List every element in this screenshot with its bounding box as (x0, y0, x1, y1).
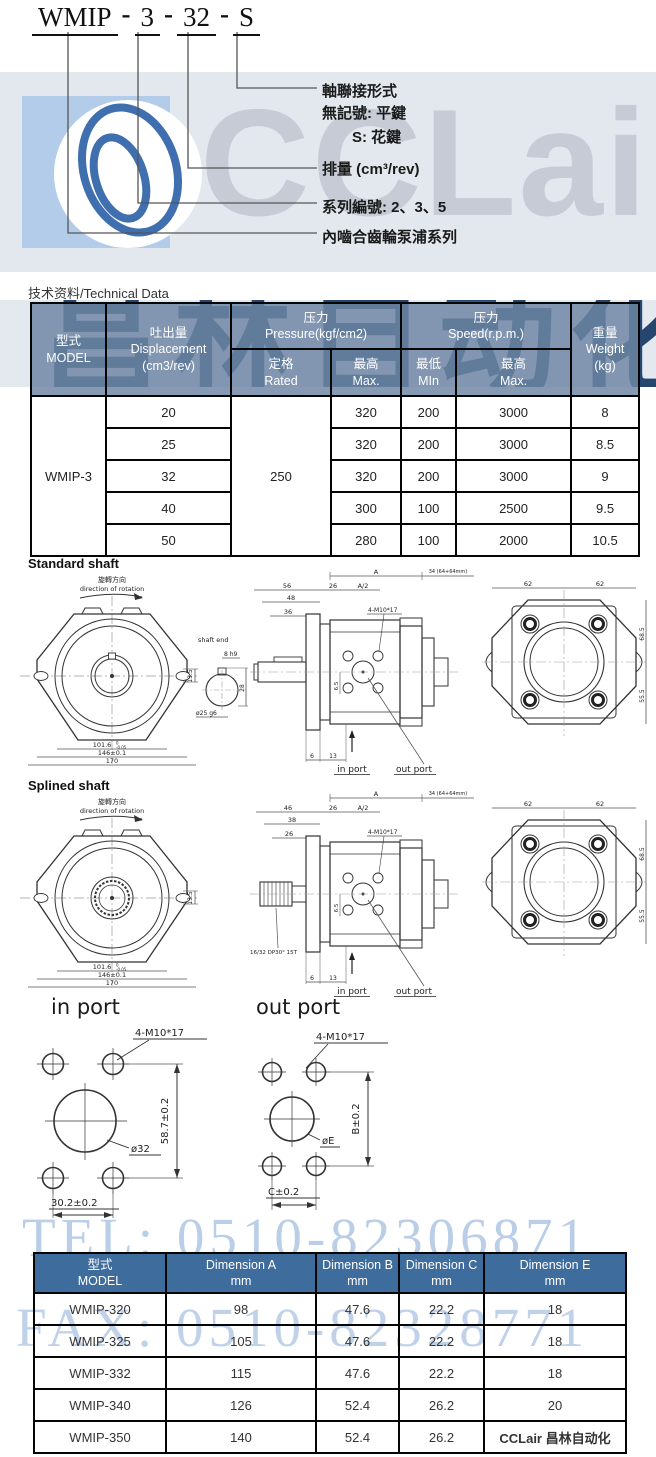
shaft-end-label: shaft end (198, 636, 229, 644)
th-min-en: MIn (402, 373, 455, 389)
th-model-zh: 型式 (32, 333, 105, 349)
cell-dim-b: 47.6 (316, 1325, 399, 1357)
spline-spec-label: 16/32 DP30° 15T (250, 950, 298, 956)
th-dim-e-unit: mm (485, 1273, 625, 1289)
dim-6-5-label: 6.5 (334, 903, 340, 912)
cell-dim-c: 26.2 (399, 1389, 484, 1421)
cell-smin: 200 (401, 396, 456, 428)
dim-row: WMIP-325 105 47.6 22.2 18 (34, 1325, 626, 1357)
dim-48-label: 48 (287, 594, 295, 602)
th-rated-en: Rated (232, 373, 330, 389)
cell-pmax: 320 (331, 396, 401, 428)
cell-pmax: 300 (331, 492, 401, 524)
dim-row: WMIP-350 140 52.4 26.2 CCLair 昌林自动化 (34, 1421, 626, 1453)
label-series-name: 內嚙合齒輪泵浦系列 (322, 226, 457, 247)
dim-68-5-label: 68.5 (639, 627, 646, 641)
dim-13-5-label: 13.5 (187, 669, 194, 683)
tech-row: 40 300 100 2500 9.5 (31, 492, 639, 524)
keyway (109, 653, 116, 659)
technical-data-heading: 技术资料/Technical Data (28, 283, 169, 302)
footer-brand-text: CCLair 昌林自动化 (484, 1421, 626, 1453)
th-dim-a-label: Dimension A (167, 1257, 315, 1273)
out-port-horizontal-dim-label: C±0.2 (268, 1187, 299, 1198)
dim-row: WMIP-340 126 52.4 26.2 20 (34, 1389, 626, 1421)
dim-170-label: 170 (106, 979, 118, 987)
th-weight-en: Weight (572, 341, 638, 357)
th-max-zh: 最高 (332, 356, 400, 372)
dimension-table: 型式MODEL Dimension Amm Dimension Bmm Dime… (33, 1252, 627, 1454)
model-seg-series: WMIP (32, 2, 118, 36)
cell-pmax: 320 (331, 460, 401, 492)
cell-dim-e: 18 (484, 1357, 626, 1389)
cell-dim-b: 47.6 (316, 1357, 399, 1389)
cell-weight: 9.5 (571, 492, 639, 524)
dim-13-5-label: 13.5 (187, 891, 194, 905)
th-max2-en: Max. (457, 373, 570, 389)
cell-dim-e: 18 (484, 1325, 626, 1357)
standard-shaft-heading: Standard shaft (28, 556, 119, 571)
cell-disp: 50 (106, 524, 231, 556)
cell-weight: 10.5 (571, 524, 639, 556)
out-port-title: out port (256, 995, 340, 1019)
cell-dim-a: 126 (166, 1389, 316, 1421)
th-max-en: Max. (332, 373, 400, 389)
bolt-spec-label: 4-M10*17 (368, 607, 398, 614)
th-max2-zh: 最高 (457, 356, 570, 372)
in-port-arrow-icon (349, 952, 355, 960)
model-code-title: WMIP-3-32-S (28, 2, 264, 36)
rotation-label-en: direction of rotation (80, 585, 144, 593)
cell-smin: 200 (401, 428, 456, 460)
dim-62-left-label: 62 (524, 800, 532, 808)
cell-dim-model: WMIP-350 (34, 1421, 166, 1453)
out-port-diameter-label: øE (322, 1136, 334, 1147)
standard-shaft-rear-view-drawing: 62 62 68.5 55.5 (476, 580, 652, 744)
dim-36-label: 36 (284, 608, 292, 616)
tech-row: 32 320 200 3000 9 (31, 460, 639, 492)
cell-smin: 200 (401, 460, 456, 492)
model-code-leader-lines (0, 30, 656, 250)
bolt-spec-label: 4-M10*17 (135, 1028, 184, 1039)
cell-model: WMIP-3 (31, 396, 106, 556)
cell-dim-model: WMIP-340 (34, 1389, 166, 1421)
dim-38-label: 38 (288, 816, 296, 824)
bolt-spec-label: 4-M10*17 (368, 829, 398, 836)
th-dim-c-unit: mm (400, 1273, 483, 1289)
out-port-label: out port (396, 765, 433, 775)
in-port-diameter-label: ø32 (131, 1144, 150, 1155)
th-weight-zh: 重量 (572, 325, 638, 341)
cell-dim-a: 115 (166, 1357, 316, 1389)
th-disp-unit: (cm3/rev) (107, 358, 230, 374)
dash: - (164, 0, 173, 30)
th-speed-min: 最低MIn (401, 349, 456, 396)
dim-A2-label: A/2 (358, 804, 369, 812)
dim-26b-label: 26 (285, 830, 293, 838)
dim-146-label: 146±0.1 (98, 749, 126, 757)
cell-weight: 9 (571, 460, 639, 492)
dim-62-left-label: 62 (524, 580, 532, 588)
label-flat-key: 無記號: 平鍵 (322, 102, 406, 123)
in-port-drawing: in port 4-M10*17 ø32 58.7±0.2 30.2±0.2 (15, 988, 227, 1236)
cell-smax: 3000 (456, 460, 571, 492)
cell-disp: 25 (106, 428, 231, 460)
dim-13-label: 13 (329, 753, 337, 760)
th-model-en: MODEL (32, 350, 105, 366)
cell-smax: 3000 (456, 428, 571, 460)
in-port-label: in port (337, 765, 367, 775)
th-weight: 重量Weight(kg) (571, 303, 639, 396)
dim-A-label: A (374, 568, 379, 576)
splined-shaft-heading: Splined shaft (28, 778, 110, 793)
cell-dim-c: 22.2 (399, 1293, 484, 1325)
th-press-en: Pressure(kgf/cm2) (232, 326, 400, 342)
model-seg-displacement: 32 (177, 2, 216, 36)
cell-smin: 100 (401, 524, 456, 556)
cell-dim-b: 52.4 (316, 1421, 399, 1453)
cell-disp: 40 (106, 492, 231, 524)
model-seg-number: 3 (135, 2, 161, 36)
th-displacement: 吐出量Displacement(cm3/rev) (106, 303, 231, 396)
dim-25g6-label: ø25 g6 (196, 710, 217, 717)
dim-6-label: 6 (310, 975, 314, 982)
th-pressure: 压力Pressure(kgf/cm2) (231, 303, 401, 349)
dim-row: WMIP-320 98 47.6 22.2 18 (34, 1293, 626, 1325)
dim-28-label: 28 (239, 684, 246, 692)
dim-34-label: 34 (64+64mm) (429, 569, 468, 575)
in-port-title: in port (51, 995, 120, 1019)
dim-68-5-label: 68.5 (639, 847, 646, 861)
splined-shaft-side-view-drawing: A 34 (64+64mm) 46 26 A/2 38 26 4-M10*17 (248, 788, 478, 998)
th-min-zh: 最低 (402, 356, 455, 372)
cell-smin: 100 (401, 492, 456, 524)
th-dim-a-unit: mm (167, 1273, 315, 1289)
cell-dim-b: 52.4 (316, 1389, 399, 1421)
th-speed-max: 最高Max. (456, 349, 571, 396)
th-dim-c-label: Dimension C (400, 1257, 483, 1273)
cell-weight: 8 (571, 396, 639, 428)
splined-shaft-front-view-drawing: 旋轉方向 direction of rotation 13.5 101.6 0 … (16, 794, 200, 992)
bolt-spec-label: 4-M10*17 (316, 1032, 365, 1043)
dim-56-label: 56 (283, 582, 291, 590)
label-displacement: 排量 (cm³/rev) (322, 158, 420, 179)
th-dim-b-unit: mm (317, 1273, 398, 1289)
cell-dim-model: WMIP-332 (34, 1357, 166, 1389)
th-dim-b-label: Dimension B (317, 1257, 398, 1273)
label-spline-key: S: 花鍵 (352, 126, 401, 147)
in-port-arrow-icon (349, 730, 355, 738)
rotation-label-zh: 旋轉方向 (98, 575, 126, 584)
dim-34-label: 34 (64+64mm) (429, 791, 468, 797)
dash: - (220, 0, 229, 30)
cell-pmax: 280 (331, 524, 401, 556)
out-port-drawing: out port 4-M10*17 øE B±0.2 C±0.2 (228, 988, 423, 1236)
rotation-label-en: direction of rotation (80, 807, 144, 815)
cell-rated: 250 (231, 396, 331, 556)
dim-26-label: 26 (329, 804, 337, 812)
th-pressure-max: 最高Max. (331, 349, 401, 396)
cell-dim-model: WMIP-320 (34, 1293, 166, 1325)
splined-shaft-rear-view-drawing: 62 62 68.5 55.5 (476, 800, 652, 964)
th-rated-zh: 定格 (232, 356, 330, 372)
dim-8h9-label: 8 h9 (224, 651, 238, 658)
cell-dim-c: 26.2 (399, 1421, 484, 1453)
cell-dim-a: 98 (166, 1293, 316, 1325)
cell-dim-e: 20 (484, 1389, 626, 1421)
th-dim-c: Dimension Cmm (399, 1253, 484, 1293)
th-speed-zh: 压力 (402, 310, 570, 326)
dim-A2-label: A/2 (358, 582, 369, 590)
cell-dim-c: 22.2 (399, 1357, 484, 1389)
dim-101-6-label: 101.6 (93, 963, 112, 971)
dim-6-label: 6 (310, 753, 314, 760)
cell-smax: 3000 (456, 396, 571, 428)
dim-26-label: 26 (329, 582, 337, 590)
dim-62-right-label: 62 (596, 800, 604, 808)
dim-A-label: A (374, 790, 379, 798)
label-shaft-connection-type: 軸聯接形式 (322, 80, 397, 101)
model-seg-shaft: S (233, 2, 260, 36)
cell-pmax: 320 (331, 428, 401, 460)
cell-dim-a: 140 (166, 1421, 316, 1453)
datasheet-page: CCLair WMIP-3-32-S 軸聯接形式 無記號: 平鍵 S: 花鍵 排… (0, 0, 656, 1457)
th-dim-model: 型式MODEL (34, 1253, 166, 1293)
dim-101-6-label: 101.6 (93, 741, 112, 749)
dim-6-5-label: 6.5 (334, 681, 340, 690)
cell-dim-a: 105 (166, 1325, 316, 1357)
label-series-number: 系列編號: 2、3、5 (322, 196, 446, 217)
th-dim-e-label: Dimension E (485, 1257, 625, 1273)
cell-dim-c: 22.2 (399, 1325, 484, 1357)
rotation-label-zh: 旋轉方向 (98, 797, 126, 806)
th-disp-zh: 吐出量 (107, 325, 230, 341)
cell-dim-e: 18 (484, 1293, 626, 1325)
cell-dim-model: WMIP-325 (34, 1325, 166, 1357)
dim-55-5-label: 55.5 (639, 689, 646, 703)
cell-disp: 20 (106, 396, 231, 428)
in-port-horizontal-dim-label: 30.2±0.2 (51, 1198, 98, 1209)
dim-146-label: 146±0.1 (98, 971, 126, 979)
th-dim-model-en: MODEL (35, 1273, 165, 1289)
th-dim-e: Dimension Emm (484, 1253, 626, 1293)
tech-row: 50 280 100 2000 10.5 (31, 524, 639, 556)
dash: - (122, 0, 131, 30)
dim-170-label: 170 (106, 757, 118, 765)
cell-dim-b: 47.6 (316, 1293, 399, 1325)
shaft-key (274, 657, 302, 662)
cell-weight: 8.5 (571, 428, 639, 460)
technical-data-table: 型式MODEL 吐出量Displacement(cm3/rev) 压力Press… (30, 302, 640, 557)
cell-smax: 2500 (456, 492, 571, 524)
dim-13-label: 13 (329, 975, 337, 982)
in-port-vertical-dim-label: 58.7±0.2 (160, 1098, 171, 1145)
standard-shaft-front-view-drawing: 旋轉方向 direction of rotation 13.5 101.6 0 … (16, 572, 200, 770)
cell-smax: 2000 (456, 524, 571, 556)
th-press-zh: 压力 (232, 310, 400, 326)
th-speed-en: Speed(r.p.m.) (402, 326, 570, 342)
th-speed: 压力Speed(r.p.m.) (401, 303, 571, 349)
th-rated: 定格Rated (231, 349, 331, 396)
standard-shaft-side-view-drawing: A 34 (64+64mm) 56 26 A/2 48 36 4-M10*17 (248, 566, 478, 776)
th-dim-b: Dimension Bmm (316, 1253, 399, 1293)
cell-disp: 32 (106, 460, 231, 492)
tech-row: 25 320 200 3000 8.5 (31, 428, 639, 460)
th-dim-model-zh: 型式 (35, 1257, 165, 1273)
th-weight-unit: (kg) (572, 358, 638, 374)
dim-55-5-label: 55.5 (639, 909, 646, 923)
tech-row: WMIP-3 20 250 320 200 3000 8 (31, 396, 639, 428)
dim-row: WMIP-332 115 47.6 22.2 18 (34, 1357, 626, 1389)
out-port-vertical-dim-label: B±0.2 (351, 1103, 362, 1134)
th-model: 型式MODEL (31, 303, 106, 396)
dim-62-right-label: 62 (596, 580, 604, 588)
th-disp-en: Displacement (107, 341, 230, 357)
dim-46-label: 46 (284, 804, 292, 812)
th-dim-a: Dimension Amm (166, 1253, 316, 1293)
